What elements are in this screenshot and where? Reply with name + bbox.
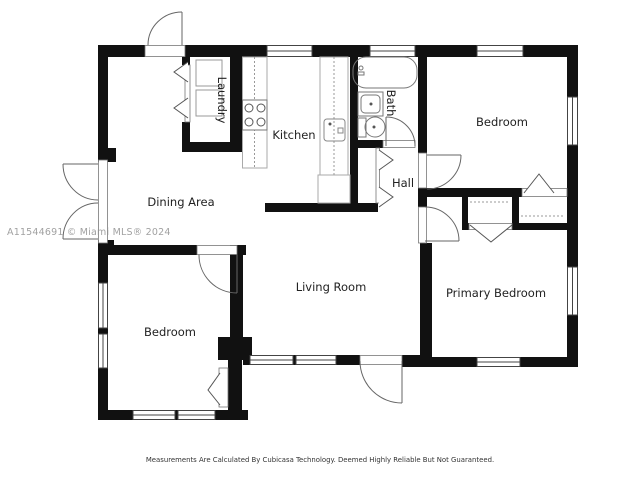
floor-plan-drawing: Laundry Kitchen Bath Hall Bedroom Dining… — [0, 0, 640, 480]
window — [370, 46, 415, 57]
front-door-top — [148, 12, 182, 45]
window — [250, 356, 293, 365]
room-label-living-room: Living Room — [296, 280, 367, 294]
window — [178, 411, 215, 420]
window — [477, 46, 523, 57]
window — [99, 334, 108, 368]
primary-closet-bifold — [470, 225, 512, 242]
bedroom-door-top-right — [427, 155, 461, 189]
window — [267, 46, 312, 57]
floor-plan-page: A11544691 © Miami MLS® 2024 — [0, 0, 640, 480]
room-label-laundry: Laundry — [215, 77, 229, 124]
room-label-dining-area: Dining Area — [147, 195, 214, 209]
window — [568, 97, 578, 145]
room-label-bedroom-top-right: Bedroom — [476, 115, 528, 129]
room-label-bedroom-bottom-left: Bedroom — [144, 325, 196, 339]
window — [99, 283, 108, 328]
disclaimer-text: Measurements Are Calculated By Cubicasa … — [0, 456, 640, 464]
window — [568, 267, 578, 315]
room-label-primary-bedroom: Primary Bedroom — [446, 286, 546, 300]
entry-door-living — [360, 361, 402, 403]
bedroom-closet-bifold — [524, 174, 554, 193]
side-bifold-door — [208, 373, 220, 405]
bathroom-sink-icon — [358, 92, 383, 116]
room-label-kitchen: Kitchen — [272, 128, 315, 142]
room-label-hall: Hall — [392, 176, 414, 190]
room-label-bath: Bath — [384, 90, 398, 117]
window — [477, 358, 520, 367]
hall-closet-bifold-doors — [379, 150, 393, 207]
french-door-upper — [63, 164, 98, 200]
stove-icon — [243, 100, 268, 130]
bathtub-icon — [353, 57, 417, 88]
mls-watermark: A11544691 © Miami MLS® 2024 — [7, 227, 171, 238]
window — [296, 356, 336, 365]
toilet-icon — [358, 117, 385, 137]
primary-bedroom-door — [425, 207, 459, 241]
window — [133, 411, 175, 420]
